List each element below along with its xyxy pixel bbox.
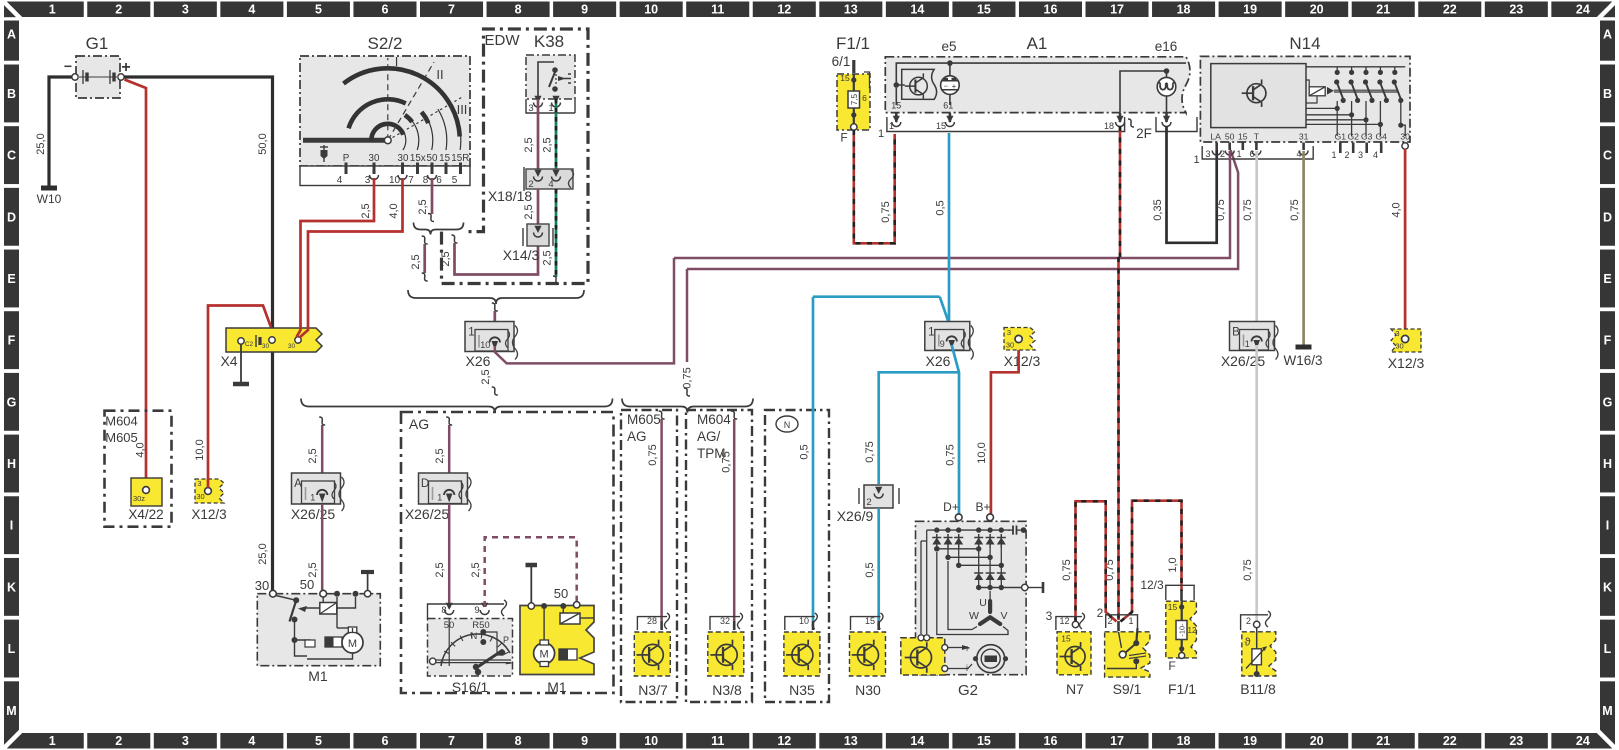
- svg-text:0,75: 0,75: [647, 444, 659, 465]
- svg-text:22: 22: [1443, 734, 1457, 748]
- svg-text:C2: C2: [245, 341, 254, 348]
- svg-text:0,75: 0,75: [721, 451, 733, 472]
- svg-text:19: 19: [1243, 734, 1257, 748]
- svg-text:G: G: [1603, 395, 1613, 409]
- svg-text:N7: N7: [1066, 681, 1084, 697]
- svg-text:3: 3: [365, 175, 371, 186]
- svg-text:23: 23: [1509, 734, 1523, 748]
- svg-text:30: 30: [1006, 341, 1014, 350]
- svg-text:0,75: 0,75: [1061, 559, 1073, 580]
- svg-text:32: 32: [720, 616, 730, 626]
- svg-text:15: 15: [891, 101, 901, 111]
- svg-text:X26/9: X26/9: [837, 508, 874, 524]
- svg-text:8: 8: [515, 734, 522, 748]
- svg-text:2,5: 2,5: [480, 369, 492, 384]
- svg-text:2,5: 2,5: [434, 562, 446, 577]
- svg-text:4: 4: [1296, 149, 1301, 159]
- svg-text:F: F: [1168, 659, 1175, 673]
- svg-text:0,75: 0,75: [1242, 559, 1254, 580]
- svg-text:0,5: 0,5: [935, 200, 947, 215]
- svg-text:B11/8: B11/8: [1240, 681, 1276, 697]
- svg-text:0,75: 0,75: [864, 441, 876, 462]
- svg-text:8: 8: [515, 3, 522, 17]
- svg-text:3: 3: [1007, 328, 1011, 337]
- svg-text:L: L: [1604, 642, 1612, 656]
- svg-text:+: +: [952, 82, 957, 91]
- svg-text:6/1: 6/1: [832, 54, 851, 69]
- svg-text:9: 9: [940, 339, 945, 349]
- svg-text:30: 30: [255, 578, 269, 593]
- svg-text:N: N: [784, 420, 791, 430]
- svg-text:2: 2: [115, 734, 122, 748]
- svg-text:0,75: 0,75: [945, 444, 957, 465]
- svg-text:11: 11: [711, 734, 724, 748]
- svg-text:20: 20: [1310, 734, 1324, 748]
- svg-text:24: 24: [1576, 3, 1590, 17]
- svg-text:1: 1: [49, 3, 56, 17]
- svg-text:1: 1: [1245, 339, 1250, 349]
- svg-text:D: D: [1603, 210, 1612, 224]
- svg-text:21: 21: [1376, 3, 1390, 17]
- svg-text:2,5: 2,5: [307, 562, 319, 577]
- svg-text:F: F: [1604, 334, 1612, 348]
- svg-text:2F: 2F: [1136, 126, 1152, 141]
- svg-text:15: 15: [439, 153, 450, 164]
- svg-text:G2: G2: [958, 682, 978, 699]
- svg-text:I: I: [395, 54, 399, 69]
- svg-text:3: 3: [197, 479, 201, 488]
- svg-text:50: 50: [300, 577, 314, 592]
- svg-text:A1: A1: [1027, 34, 1048, 53]
- svg-text:M605: M605: [105, 430, 138, 445]
- svg-text:G2: G2: [1347, 132, 1359, 142]
- svg-text:15: 15: [977, 3, 991, 17]
- svg-text:20: 20: [1310, 3, 1324, 17]
- svg-text:15: 15: [1168, 602, 1178, 612]
- svg-text:M604: M604: [697, 412, 731, 427]
- svg-text:18: 18: [1177, 3, 1191, 17]
- svg-text:L: L: [8, 642, 16, 656]
- svg-text:1: 1: [889, 121, 894, 131]
- svg-text:M: M: [348, 638, 357, 650]
- svg-text:N35: N35: [789, 682, 815, 698]
- svg-text:B: B: [7, 87, 16, 101]
- svg-text:1: 1: [928, 327, 934, 339]
- svg-text:10,0: 10,0: [976, 442, 988, 463]
- svg-text:0,75: 0,75: [1215, 199, 1227, 220]
- svg-text:2: 2: [1246, 616, 1251, 626]
- svg-text:30: 30: [369, 153, 380, 164]
- svg-text:+: +: [964, 644, 970, 655]
- svg-text:E: E: [7, 272, 15, 286]
- svg-text:3: 3: [1046, 609, 1053, 623]
- svg-text:2,5: 2,5: [307, 448, 319, 463]
- svg-text:2,5: 2,5: [542, 250, 554, 265]
- svg-text:30: 30: [1395, 342, 1403, 351]
- svg-text:B: B: [1232, 327, 1240, 339]
- svg-text:7: 7: [448, 3, 455, 17]
- svg-text:15R: 15R: [451, 153, 469, 164]
- svg-text:3: 3: [528, 103, 533, 114]
- svg-text:E: E: [1603, 272, 1611, 286]
- svg-text:0,75: 0,75: [1242, 199, 1254, 220]
- svg-text:0,5: 0,5: [799, 444, 811, 459]
- svg-text:LA: LA: [1210, 132, 1221, 142]
- svg-text:M1: M1: [547, 679, 567, 695]
- svg-text:30: 30: [288, 343, 296, 350]
- svg-text:X4/22: X4/22: [128, 507, 163, 522]
- svg-text:0,75: 0,75: [1289, 199, 1301, 220]
- svg-text:M: M: [1602, 704, 1612, 718]
- svg-text:15: 15: [1061, 634, 1071, 644]
- svg-text:30z: 30z: [133, 494, 145, 503]
- svg-text:2,5: 2,5: [523, 137, 535, 152]
- svg-text:S9/1: S9/1: [1113, 681, 1142, 697]
- svg-text:30: 30: [1400, 132, 1410, 142]
- svg-text:3: 3: [182, 3, 189, 17]
- svg-text:5: 5: [315, 3, 322, 17]
- svg-text:2: 2: [1097, 606, 1104, 620]
- svg-text:12: 12: [1059, 616, 1069, 626]
- svg-text:F1/1: F1/1: [1168, 681, 1196, 697]
- svg-text:1,0: 1,0: [1167, 557, 1179, 572]
- svg-text:2,5: 2,5: [417, 199, 429, 214]
- svg-text:A: A: [7, 28, 16, 42]
- svg-text:15: 15: [977, 734, 991, 748]
- svg-text:N14: N14: [1289, 34, 1320, 53]
- svg-text:G1: G1: [1335, 132, 1347, 142]
- svg-text:N3/7: N3/7: [638, 682, 668, 698]
- svg-text:15x: 15x: [410, 153, 426, 164]
- svg-text:13: 13: [844, 3, 858, 17]
- svg-text:12: 12: [777, 734, 791, 748]
- svg-text:15: 15: [1238, 132, 1248, 142]
- svg-text:61: 61: [943, 101, 953, 111]
- svg-text:G3: G3: [1361, 132, 1373, 142]
- svg-text:11: 11: [711, 3, 724, 17]
- svg-text:10: 10: [644, 3, 658, 17]
- svg-text:10,0: 10,0: [194, 439, 206, 460]
- svg-text:18: 18: [1104, 121, 1114, 131]
- svg-text:X26/25: X26/25: [1221, 353, 1266, 369]
- svg-text:1: 1: [49, 734, 56, 748]
- svg-text:H: H: [1603, 457, 1612, 471]
- svg-text:4: 4: [548, 179, 553, 190]
- svg-text:3: 3: [1358, 150, 1363, 160]
- svg-text:B: B: [1603, 87, 1612, 101]
- svg-text:X14/3: X14/3: [503, 247, 540, 263]
- svg-text:S16/1: S16/1: [452, 679, 489, 695]
- svg-text:U: U: [979, 597, 987, 609]
- svg-text:e16: e16: [1155, 39, 1178, 54]
- svg-text:30: 30: [196, 492, 204, 501]
- svg-text:D+: D+: [943, 500, 959, 514]
- svg-text:7: 7: [448, 734, 455, 748]
- svg-text:I: I: [10, 519, 13, 533]
- svg-text:4: 4: [248, 734, 255, 748]
- svg-text:18: 18: [1177, 734, 1191, 748]
- svg-text:X12/3: X12/3: [1004, 353, 1041, 369]
- svg-text:1: 1: [1128, 616, 1133, 626]
- svg-text:50: 50: [427, 153, 438, 164]
- svg-text:M604: M604: [105, 414, 138, 429]
- svg-text:X26: X26: [926, 353, 951, 369]
- svg-text:X26: X26: [466, 353, 491, 369]
- svg-text:2,5: 2,5: [360, 203, 372, 218]
- svg-text:C: C: [1603, 149, 1612, 163]
- svg-text:X26/25: X26/25: [405, 506, 450, 522]
- svg-text:6: 6: [381, 3, 388, 17]
- svg-text:X12/3: X12/3: [1388, 355, 1425, 371]
- svg-text:3: 3: [182, 734, 189, 748]
- svg-text:X4: X4: [220, 353, 237, 369]
- svg-text:T: T: [1254, 132, 1260, 142]
- svg-text:1: 1: [310, 493, 315, 503]
- svg-text:i: i: [966, 663, 968, 673]
- svg-text:W: W: [969, 610, 979, 622]
- svg-text:2: 2: [1344, 150, 1349, 160]
- svg-text:2: 2: [866, 497, 871, 508]
- svg-text:−: −: [64, 58, 72, 74]
- svg-text:X12/3: X12/3: [191, 507, 226, 522]
- svg-text:4,0: 4,0: [388, 203, 400, 218]
- svg-text:D: D: [7, 210, 16, 224]
- svg-text:31: 31: [1299, 132, 1309, 142]
- svg-text:W16/3: W16/3: [1283, 353, 1322, 368]
- svg-text:e5: e5: [941, 39, 956, 54]
- svg-text:16: 16: [1044, 3, 1058, 17]
- svg-text:25,0: 25,0: [257, 543, 269, 564]
- svg-text:2,5: 2,5: [542, 137, 554, 152]
- svg-text:0,5: 0,5: [864, 562, 876, 577]
- svg-text:10: 10: [799, 616, 809, 626]
- svg-text:14: 14: [910, 734, 924, 748]
- svg-text:2: 2: [1107, 616, 1112, 626]
- svg-text:4: 4: [337, 175, 343, 186]
- svg-text:A: A: [294, 478, 302, 490]
- svg-text:2,5: 2,5: [523, 204, 535, 219]
- svg-text:0,75: 0,75: [880, 201, 892, 222]
- svg-text:19: 19: [1243, 3, 1257, 17]
- svg-text:0,35: 0,35: [1152, 199, 1164, 220]
- svg-text:9: 9: [581, 734, 588, 748]
- svg-text:6: 6: [436, 175, 442, 186]
- svg-text:10: 10: [480, 340, 490, 350]
- svg-text:2,5: 2,5: [470, 562, 482, 577]
- svg-text:30: 30: [398, 153, 409, 164]
- svg-text:1: 1: [548, 103, 553, 114]
- svg-text:12/3: 12/3: [1140, 578, 1164, 592]
- svg-text:15: 15: [936, 121, 946, 131]
- svg-text:22: 22: [1443, 3, 1457, 17]
- svg-text:P: P: [503, 635, 509, 645]
- svg-text:G4: G4: [1375, 132, 1387, 142]
- svg-text:14: 14: [910, 3, 924, 17]
- svg-text:D: D: [421, 478, 429, 490]
- svg-text:24: 24: [1576, 734, 1590, 748]
- svg-text:1: 1: [878, 128, 884, 140]
- svg-text:50: 50: [554, 586, 568, 601]
- svg-text:6: 6: [862, 93, 867, 103]
- svg-text:6: 6: [381, 734, 388, 748]
- svg-text:ϑ: ϑ: [1244, 637, 1250, 649]
- svg-text:AG: AG: [409, 416, 429, 432]
- svg-text:28: 28: [647, 616, 657, 626]
- svg-text:2: 2: [115, 3, 122, 17]
- svg-text:K: K: [1603, 580, 1612, 594]
- svg-text:R50: R50: [472, 620, 489, 631]
- svg-text:21: 21: [1376, 734, 1390, 748]
- svg-text:16: 16: [1044, 734, 1058, 748]
- svg-text:7: 7: [408, 175, 414, 186]
- svg-text:M: M: [6, 704, 16, 718]
- svg-text:N3/8: N3/8: [712, 682, 742, 698]
- svg-text:7,5: 7,5: [850, 93, 859, 105]
- svg-text:1: 1: [1193, 154, 1199, 166]
- svg-text:4,0: 4,0: [1391, 202, 1403, 217]
- svg-text:M: M: [540, 649, 549, 661]
- svg-text:30: 30: [262, 343, 270, 350]
- svg-text:F: F: [8, 334, 16, 348]
- svg-text:X26/25: X26/25: [291, 506, 336, 522]
- svg-text:I: I: [1606, 519, 1609, 533]
- svg-text:50,0: 50,0: [257, 133, 269, 154]
- svg-text:1: 1: [468, 327, 474, 339]
- svg-text:10: 10: [644, 734, 658, 748]
- svg-text:2,5: 2,5: [434, 448, 446, 463]
- svg-text:EDW: EDW: [485, 32, 521, 49]
- svg-text:V: V: [1000, 610, 1007, 622]
- svg-text:1: 1: [437, 493, 442, 503]
- svg-text:M605: M605: [627, 412, 661, 427]
- svg-text:6: 6: [1249, 149, 1254, 159]
- svg-text:12: 12: [777, 3, 791, 17]
- svg-text:50: 50: [1225, 132, 1235, 142]
- svg-text:2,5: 2,5: [410, 254, 422, 269]
- svg-text:S2/2: S2/2: [368, 34, 403, 53]
- svg-text:4: 4: [1373, 150, 1378, 160]
- svg-text:4: 4: [248, 3, 255, 17]
- svg-text:5: 5: [315, 734, 322, 748]
- svg-text:5: 5: [452, 175, 458, 186]
- svg-text:N30: N30: [855, 682, 881, 698]
- svg-text:III: III: [457, 102, 468, 117]
- svg-text:1: 1: [1331, 150, 1336, 160]
- svg-text:9: 9: [474, 605, 479, 616]
- svg-text:15: 15: [840, 73, 850, 83]
- svg-text:W10: W10: [37, 192, 62, 206]
- svg-text:H: H: [7, 457, 16, 471]
- svg-text:II: II: [436, 67, 443, 82]
- svg-text:8: 8: [423, 175, 429, 186]
- svg-text:9: 9: [581, 3, 588, 17]
- svg-text:X18/18: X18/18: [488, 188, 533, 204]
- svg-text:C: C: [7, 149, 16, 163]
- svg-text:M1: M1: [308, 668, 328, 684]
- svg-text:F1/1: F1/1: [836, 34, 870, 53]
- svg-text:15: 15: [865, 616, 875, 626]
- svg-text:1: 1: [1236, 149, 1241, 159]
- svg-text:G: G: [7, 395, 17, 409]
- svg-text:23: 23: [1509, 3, 1523, 17]
- svg-text:12: 12: [1188, 626, 1197, 635]
- svg-text:2: 2: [1220, 149, 1225, 159]
- svg-text:3: 3: [1395, 329, 1399, 338]
- svg-text:13: 13: [844, 734, 858, 748]
- svg-text:A: A: [1603, 28, 1612, 42]
- svg-text:K: K: [7, 580, 16, 594]
- svg-text:2,5: 2,5: [440, 251, 452, 266]
- svg-text:AG/: AG/: [697, 429, 721, 444]
- svg-text:17: 17: [1110, 734, 1124, 748]
- svg-text:G1: G1: [86, 34, 109, 53]
- svg-text:−: −: [944, 82, 949, 91]
- svg-text:B+: B+: [975, 500, 990, 514]
- svg-text:3: 3: [1205, 149, 1210, 159]
- svg-text:AG: AG: [627, 429, 647, 444]
- svg-text:25,0: 25,0: [35, 133, 47, 154]
- svg-text:10: 10: [389, 175, 401, 186]
- svg-text:17: 17: [1110, 3, 1124, 17]
- svg-text:P: P: [343, 153, 350, 164]
- svg-text:F: F: [840, 131, 847, 145]
- svg-text:-10-: -10-: [1178, 623, 1187, 637]
- svg-text:K38: K38: [534, 32, 564, 51]
- svg-text:0,75: 0,75: [682, 367, 694, 388]
